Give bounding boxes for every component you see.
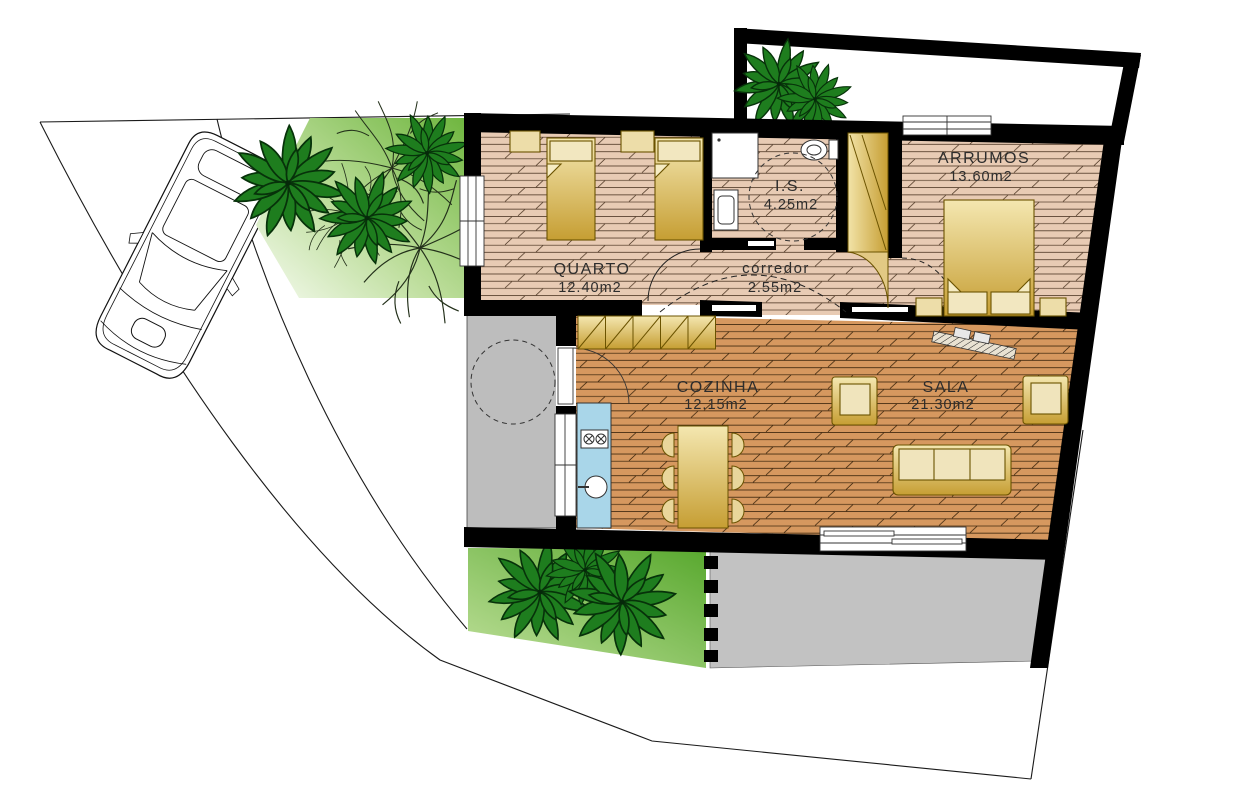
- entry-patio: [467, 315, 558, 528]
- terrace: [704, 549, 1050, 668]
- label-cozinha-area: 12.15m2: [684, 397, 747, 413]
- double-bed: [944, 200, 1034, 316]
- washbasin: [714, 190, 738, 230]
- label-corredor-area: 2.55m2: [748, 280, 802, 296]
- window-quarto-west: [460, 176, 484, 266]
- label-is-area: 4.25m2: [764, 197, 818, 213]
- label-cozinha-name: COZINHA: [677, 379, 760, 396]
- stove: [581, 430, 608, 448]
- sliding-door-sala: [820, 527, 966, 551]
- single-bed: [655, 138, 703, 240]
- floor-plan-drawing: QUARTO 12.40m2 I.S. 4.25m2 corredor 2.55…: [0, 0, 1257, 793]
- window-arrumos-north: [903, 116, 991, 135]
- label-quarto-area: 12.40m2: [558, 280, 621, 296]
- window-kitchen-west: [555, 414, 576, 516]
- label-sala-area: 21.30m2: [911, 397, 974, 413]
- label-corredor-name: corredor: [742, 260, 810, 277]
- toilet: [801, 140, 838, 160]
- armchair: [1023, 376, 1068, 424]
- nightstand: [621, 131, 654, 152]
- label-arrumos-area: 13.60m2: [949, 169, 1012, 185]
- nightstand: [916, 298, 942, 316]
- single-bed: [547, 138, 595, 240]
- label-quarto-name: QUARTO: [554, 261, 631, 278]
- floor-plan-canvas: QUARTO 12.40m2 I.S. 4.25m2 corredor 2.55…: [0, 0, 1257, 793]
- armchair: [832, 377, 877, 425]
- dining-table: [678, 426, 728, 528]
- sofa: [893, 445, 1011, 495]
- dining-table-set: [662, 426, 744, 528]
- kitchen-cabinets: [578, 316, 716, 349]
- label-sala-name: SALA: [923, 379, 970, 396]
- label-is-name: I.S.: [775, 178, 805, 195]
- nightstand: [510, 131, 540, 152]
- nightstand: [1040, 298, 1066, 316]
- kitchen-counter: [577, 403, 611, 528]
- label-arrumos-name: ARRUMOS: [938, 150, 1030, 167]
